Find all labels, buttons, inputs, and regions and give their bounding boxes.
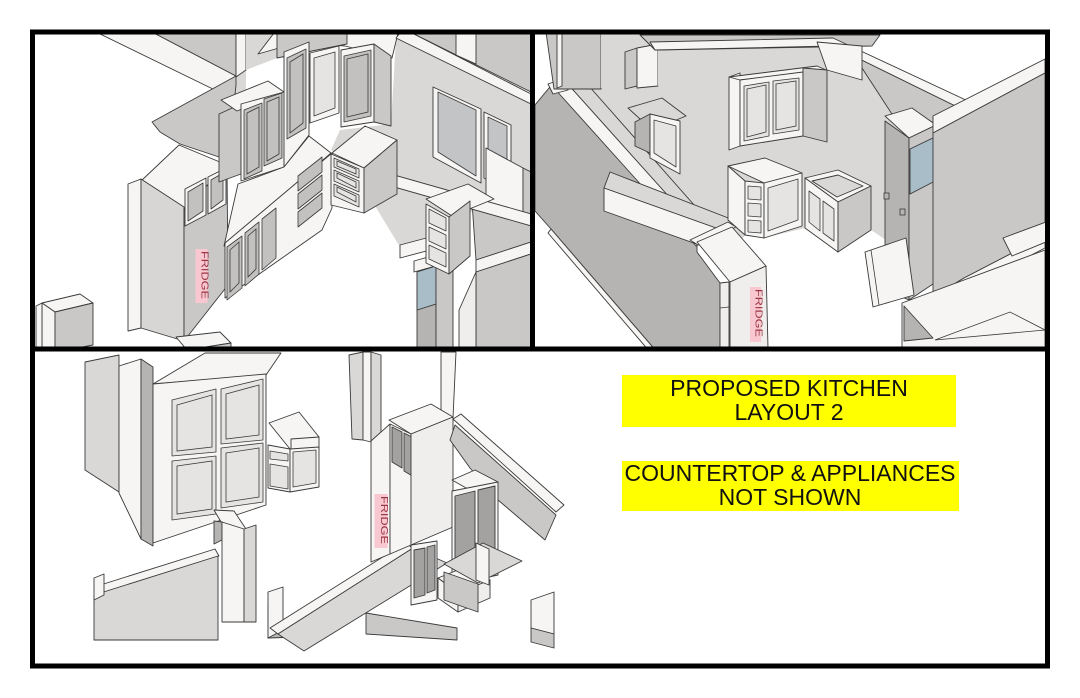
svg-text:COUNTERTOP & APPLIANCES: COUNTERTOP & APPLIANCES [624,460,955,486]
svg-text:FRIDGE: FRIDGE [199,251,211,299]
svg-text:LAYOUT 2: LAYOUT 2 [734,399,843,425]
svg-text:FRIDGE: FRIDGE [378,496,390,544]
svg-text:NOT SHOWN: NOT SHOWN [719,484,862,510]
svg-text:PROPOSED KITCHEN: PROPOSED KITCHEN [670,375,908,401]
svg-text:FRIDGE: FRIDGE [753,289,765,337]
